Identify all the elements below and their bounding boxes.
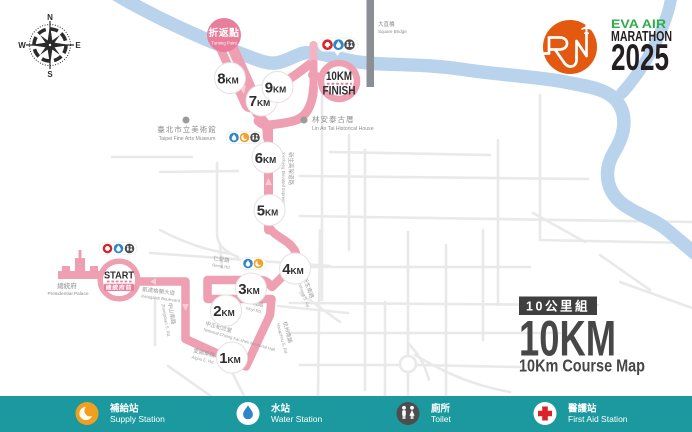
svg-text:新生高架道路: 新生高架道路 [287,152,295,186]
svg-text:大直橋: 大直橋 [378,20,395,28]
svg-text:Water Station: Water Station [271,414,322,424]
svg-text:10Km Course Map: 10Km Course Map [519,356,645,376]
svg-text:林安泰古厝: 林安泰古厝 [312,114,355,124]
svg-text:Toilet: Toilet [431,414,451,424]
svg-text:2025: 2025 [611,37,669,78]
svg-text:水站: 水站 [271,403,291,415]
svg-text:總統府: 總統府 [57,281,77,290]
svg-text:Presidential Palace: Presidential Palace [47,291,88,297]
svg-text:Square Bridge: Square Bridge [378,29,407,34]
svg-text:START: START [104,271,134,282]
svg-text:醫護站: 醫護站 [568,403,597,415]
svg-text:N: N [47,13,53,22]
svg-text:FINISH: FINISH [323,86,356,98]
svg-text:Taipei Fine Arts Museum: Taipei Fine Arts Museum [159,136,216,142]
svg-text:廁所: 廁所 [431,403,451,415]
svg-text:臺北市立美術館: 臺北市立美術館 [157,124,217,134]
svg-text:Supply Station: Supply Station [110,414,165,424]
svg-text:Lin An Tai Historical House: Lin An Tai Historical House [312,126,374,132]
svg-text:W: W [18,41,26,50]
svg-text:補給站: 補給站 [109,403,139,415]
svg-text:總統府前: 總統府前 [106,284,132,292]
svg-text:10KM: 10KM [326,71,352,83]
svg-text:First Aid Station: First Aid Station [568,414,628,424]
svg-text:E: E [75,41,81,50]
svg-text:S: S [47,70,53,79]
svg-text:折返點: 折返點 [209,26,240,39]
svg-text:Turning Point: Turning Point [211,41,237,46]
